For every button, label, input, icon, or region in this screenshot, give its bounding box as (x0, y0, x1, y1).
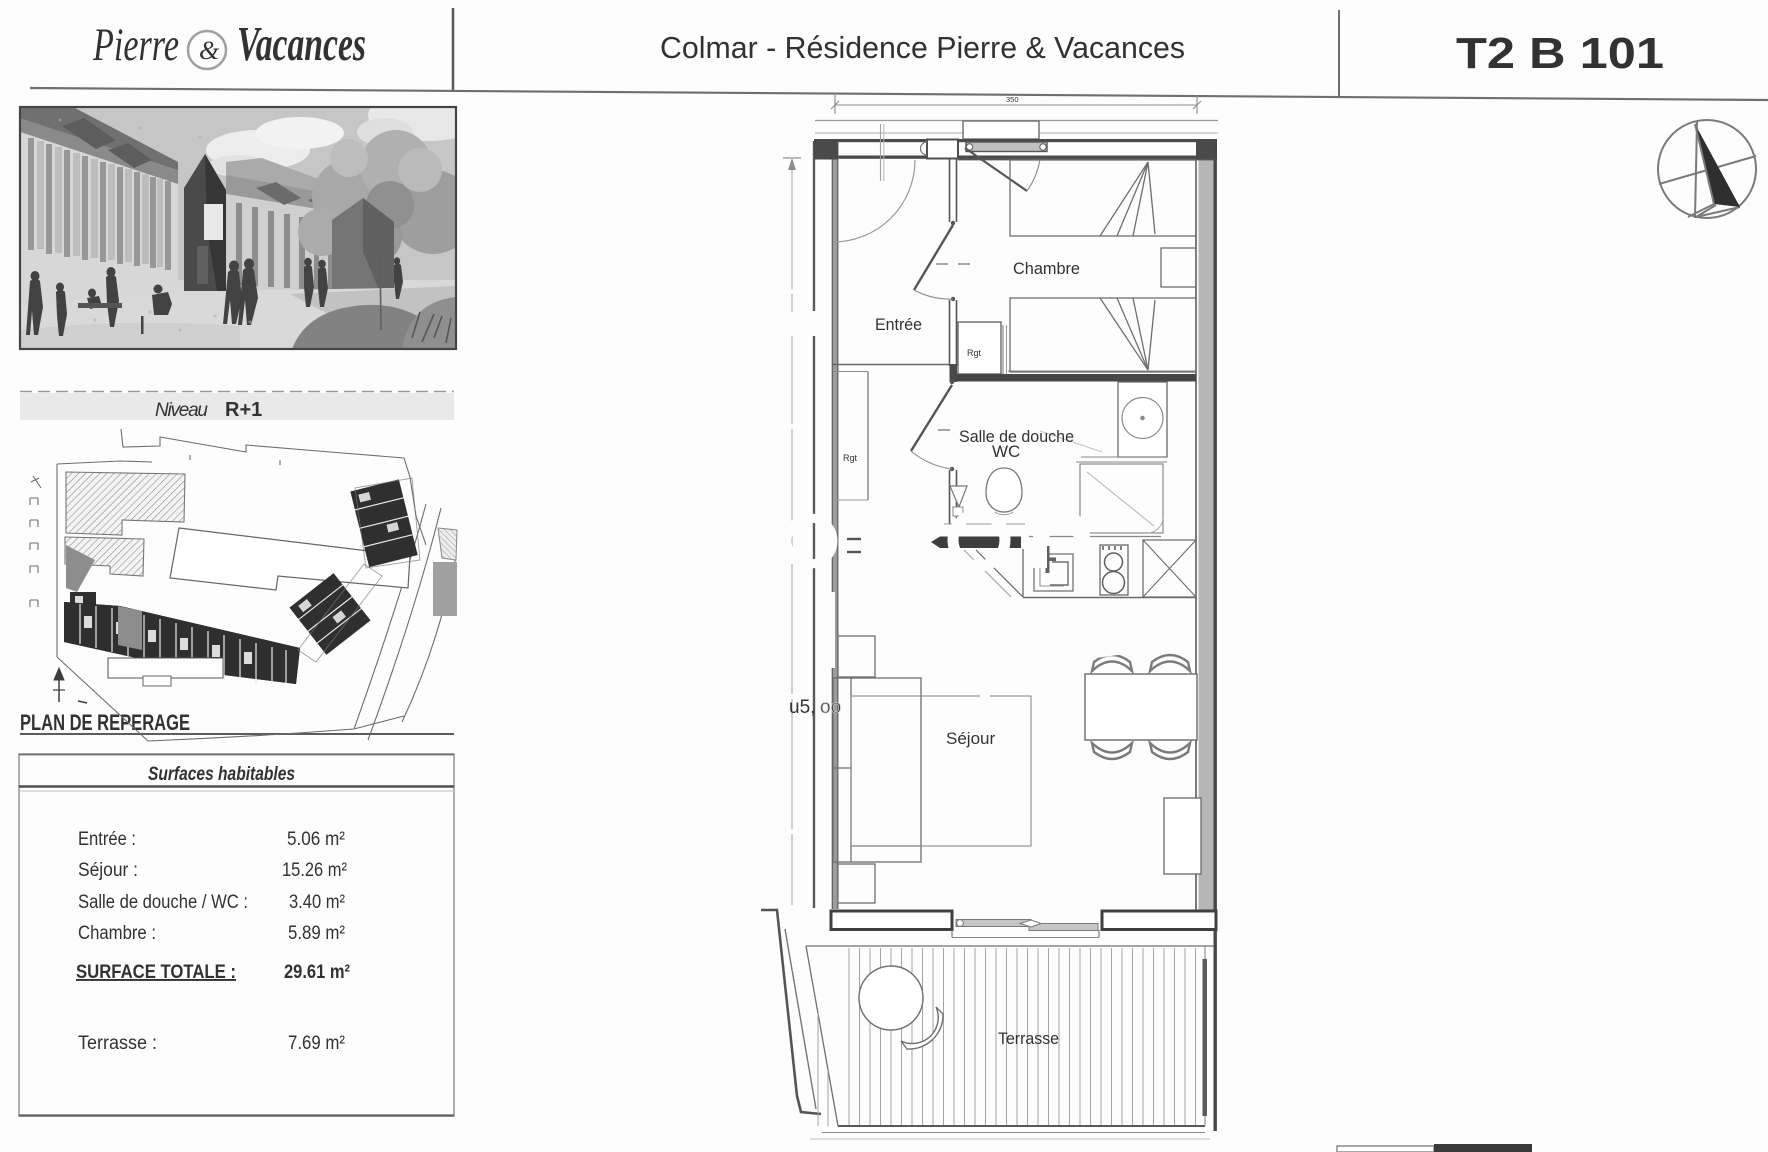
svg-text:Chambre :: Chambre : (78, 923, 156, 944)
svg-text:Colmar - Résidence Pierre & Va: Colmar - Résidence Pierre & Vacances (660, 30, 1185, 65)
svg-text:Entrée: Entrée (875, 315, 922, 334)
svg-text:350: 350 (1006, 95, 1019, 104)
svg-text:15.26 m²: 15.26 m² (282, 860, 347, 881)
svg-text:Rgt: Rgt (967, 348, 982, 358)
svg-text:Rgt: Rgt (843, 453, 858, 463)
svg-text:5.89 m²: 5.89 m² (288, 923, 345, 944)
svg-text:Chambre: Chambre (1013, 259, 1080, 278)
svg-text:u5,: u5, (789, 697, 815, 718)
svg-text:Séjour :: Séjour : (78, 860, 138, 881)
svg-text:3.40 m²: 3.40 m² (289, 892, 345, 913)
svg-text:PLAN DE REPERAGE: PLAN DE REPERAGE (20, 710, 190, 735)
svg-text:SURFACE TOTALE :: SURFACE TOTALE : (76, 962, 236, 983)
svg-text:Surfaces habitables: Surfaces habitables (148, 763, 295, 785)
svg-text:Vacances: Vacances (237, 16, 366, 71)
svg-text:Séjour: Séjour (946, 729, 995, 748)
svg-text:R+1: R+1 (225, 399, 262, 421)
svg-text:29.61 m²: 29.61 m² (284, 962, 350, 983)
svg-text:WC: WC (992, 442, 1020, 461)
svg-text:Salle de douche / WC :: Salle de douche / WC : (78, 892, 248, 913)
svg-text:Pierre: Pierre (92, 19, 179, 71)
svg-text:&: & (199, 36, 220, 65)
svg-text:Terrasse :: Terrasse : (78, 1033, 157, 1054)
svg-text:Niveau: Niveau (155, 400, 208, 421)
svg-text:5.06 m²: 5.06 m² (287, 829, 345, 850)
svg-text:7.69 m²: 7.69 m² (288, 1033, 345, 1054)
svg-text:oo: oo (820, 697, 841, 718)
svg-text:T2 B 101: T2 B 101 (1456, 29, 1664, 78)
svg-text:Entrée :: Entrée : (78, 829, 136, 850)
svg-text:Terrasse: Terrasse (998, 1029, 1059, 1048)
